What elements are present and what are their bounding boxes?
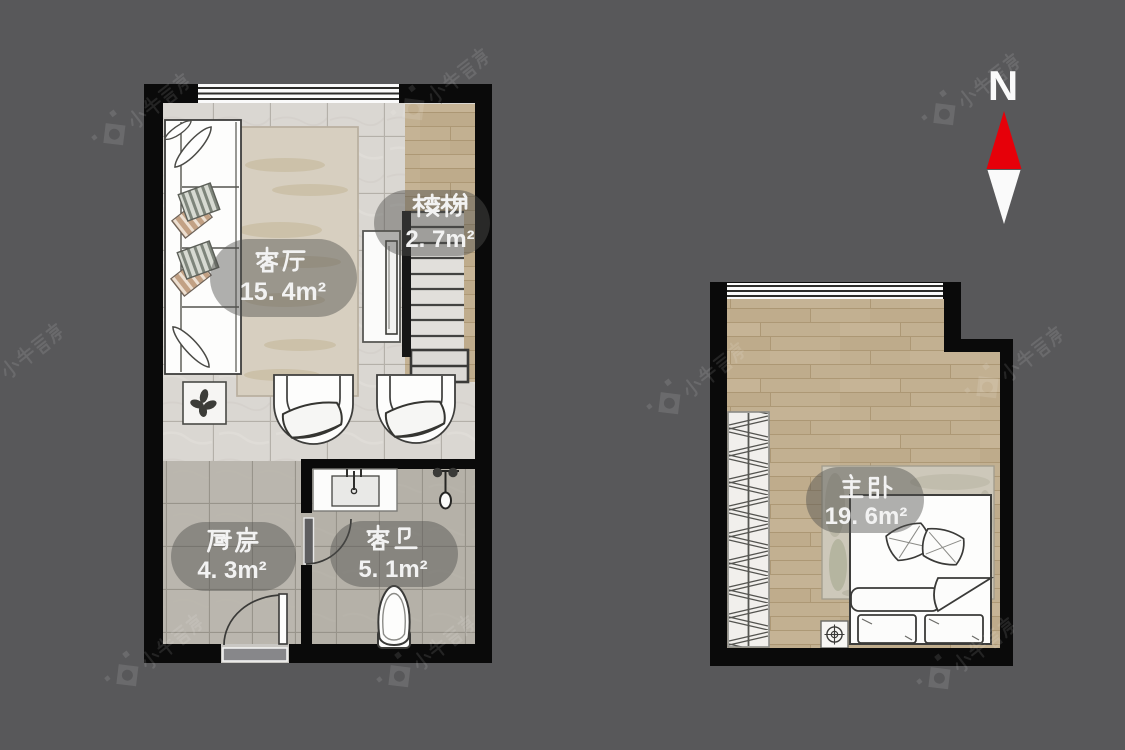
svg-text:2. 7m²: 2. 7m²	[405, 226, 474, 253]
svg-text:19. 6m²: 19. 6m²	[825, 503, 908, 530]
svg-text:15. 4m²: 15. 4m²	[240, 278, 326, 306]
svg-text:4. 3m²: 4. 3m²	[197, 557, 266, 584]
svg-text:5. 1m²: 5. 1m²	[358, 556, 427, 583]
